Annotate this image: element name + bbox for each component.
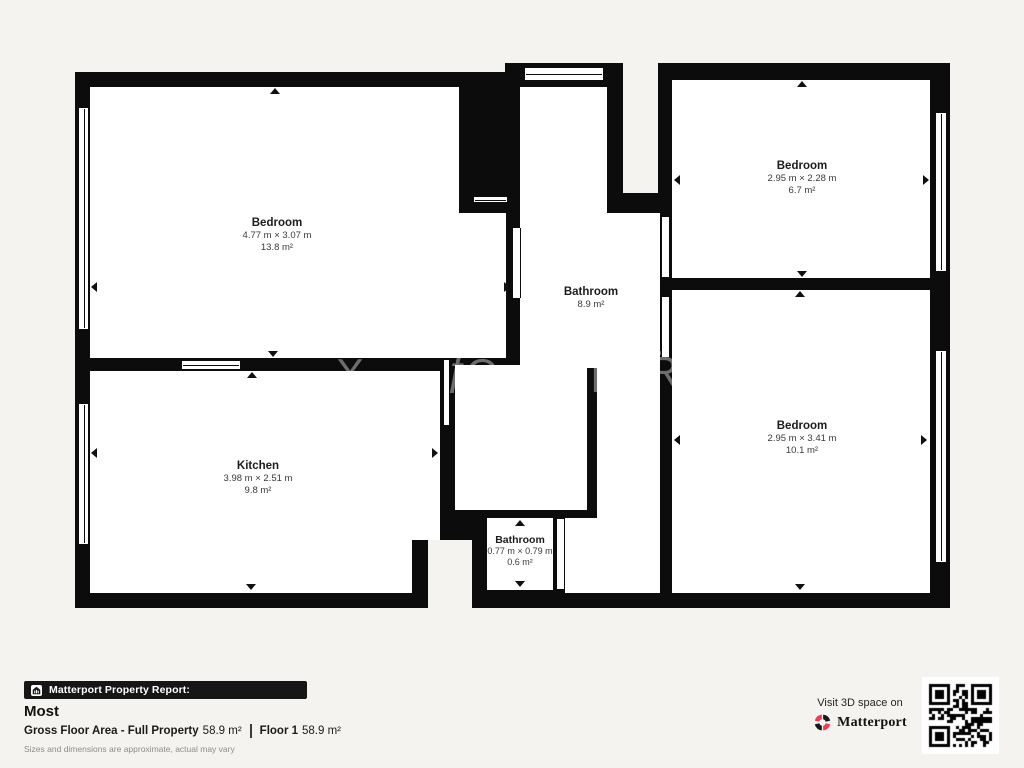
- room-bedroom-top-left-extension: [455, 213, 506, 358]
- room-kitchen: [90, 371, 440, 540]
- dimension-arrow: [432, 448, 438, 458]
- matterport-wordmark: Matterport: [837, 715, 907, 731]
- matterport-logo: Matterport: [804, 713, 916, 732]
- dimension-arrow: [921, 435, 927, 445]
- room-dimensions: 2.95 m × 2.28 m: [722, 173, 882, 185]
- report-banner: Matterport Property Report:: [24, 681, 307, 699]
- room-area: 13.8 m²: [197, 242, 357, 254]
- qr-code: [922, 677, 999, 754]
- dimension-arrow: [270, 88, 280, 94]
- floor-value: 58.9 m²: [302, 725, 341, 737]
- dimension-arrow: [515, 581, 525, 587]
- property-report-icon: [31, 685, 42, 696]
- room-label-bedroom-top-left: Bedroom 4.77 m × 3.07 m 13.8 m²: [197, 217, 357, 254]
- dimension-arrow: [246, 584, 256, 590]
- window-notch-step: [473, 196, 508, 203]
- dimension-arrow: [515, 520, 525, 526]
- window-bedroom-tr-right: [935, 112, 947, 272]
- divider: [250, 724, 252, 738]
- door-kitchen-to-hall: [443, 360, 450, 425]
- floor-area-summary: Gross Floor Area - Full Property 58.9 m²…: [24, 724, 341, 738]
- dimension-arrow: [504, 282, 510, 292]
- window-kitchen-left: [78, 403, 89, 545]
- dimension-arrow: [795, 291, 805, 297]
- room-bathroom-corridor: [520, 87, 607, 213]
- disclaimer-text: Sizes and dimensions are approximate, ac…: [24, 744, 235, 754]
- room-area: 10.1 m²: [722, 445, 882, 457]
- room-name: Bathroom: [511, 286, 671, 299]
- dimension-arrow: [247, 372, 257, 378]
- room-name: Kitchen: [178, 460, 338, 473]
- dimension-arrow: [797, 271, 807, 277]
- room-label-bathroom-main: Bathroom 8.9 m²: [511, 286, 671, 311]
- report-banner-label: Matterport Property Report:: [49, 684, 190, 696]
- property-name: Most: [24, 703, 59, 720]
- room-hall-lower-left: [455, 365, 587, 510]
- room-dimensions: 2.95 m × 3.41 m: [722, 433, 882, 445]
- dimension-arrow: [674, 175, 680, 185]
- dimension-arrow: [674, 435, 680, 445]
- dimension-arrow: [923, 175, 929, 185]
- room-dimensions: 4.77 m × 3.07 m: [197, 230, 357, 242]
- room-dimensions: 3.98 m × 2.51 m: [178, 473, 338, 485]
- gross-area-label: Gross Floor Area - Full Property: [24, 725, 199, 737]
- visit-3d-text: Visit 3D space on: [804, 697, 916, 709]
- floor-label: Floor 1: [260, 725, 298, 737]
- window-bedroom-tl-left: [78, 107, 89, 330]
- window-corridor-top: [524, 67, 604, 81]
- room-area: 8.9 m²: [511, 299, 671, 311]
- exterior-recess-bottom: [428, 540, 472, 608]
- room-name: Bedroom: [722, 420, 882, 433]
- room-area: 0.6 m²: [468, 557, 572, 568]
- gross-area-value: 58.9 m²: [203, 725, 242, 737]
- room-name: Bedroom: [197, 217, 357, 230]
- window-bedroom-br-right: [935, 350, 947, 563]
- room-name: Bedroom: [722, 160, 882, 173]
- matterport-pinwheel-icon: [813, 713, 832, 732]
- room-name: Bathroom: [468, 534, 572, 546]
- dimension-arrow: [795, 584, 805, 590]
- dimension-arrow: [91, 448, 97, 458]
- room-dimensions: 0.77 m × 0.79 m: [468, 546, 572, 557]
- room-label-kitchen: Kitchen 3.98 m × 2.51 m 9.8 m²: [178, 460, 338, 497]
- dimension-arrow: [268, 351, 278, 357]
- dimension-arrow: [797, 81, 807, 87]
- room-area: 9.8 m²: [178, 485, 338, 497]
- qr-code-pattern: [926, 681, 995, 750]
- floor-plan-report: X ƒ O I Ř Bedroom 4.: [0, 0, 1024, 768]
- room-hall-bottom: [565, 518, 660, 593]
- room-label-bedroom-bottom-right: Bedroom 2.95 m × 3.41 m 10.1 m²: [722, 420, 882, 457]
- dimension-arrow: [91, 282, 97, 292]
- visit-3d-cta: Visit 3D space on Matterport: [804, 697, 916, 732]
- room-label-bedroom-top-right: Bedroom 2.95 m × 2.28 m 6.7 m²: [722, 160, 882, 197]
- window-bedroom-kitchen-wall: [181, 360, 241, 370]
- exterior-recess-top: [623, 63, 658, 193]
- room-area: 6.7 m²: [722, 185, 882, 197]
- door-bedroom-tr: [661, 217, 670, 277]
- room-label-bathroom-small: Bathroom 0.77 m × 0.79 m 0.6 m²: [468, 534, 572, 568]
